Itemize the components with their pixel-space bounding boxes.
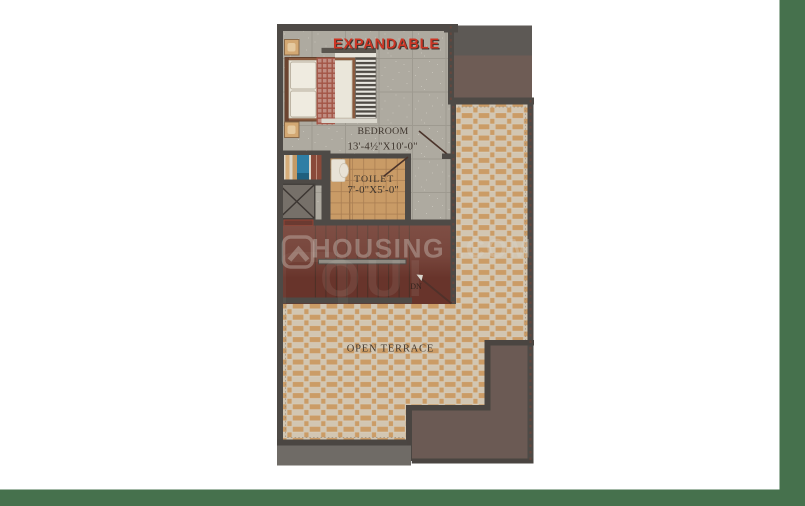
svg-text:.COM: .COM bbox=[457, 234, 532, 264]
svg-text:13'-4½"X10'-0": 13'-4½"X10'-0" bbox=[347, 140, 417, 152]
svg-text:BEDROOM: BEDROOM bbox=[357, 126, 408, 137]
svg-text:EXPANDABLE: EXPANDABLE bbox=[333, 36, 440, 52]
svg-text:7'-0"X5'-0": 7'-0"X5'-0" bbox=[348, 184, 400, 196]
svg-text:DN: DN bbox=[410, 282, 422, 291]
svg-text:OPEN TERRACE: OPEN TERRACE bbox=[347, 344, 434, 355]
